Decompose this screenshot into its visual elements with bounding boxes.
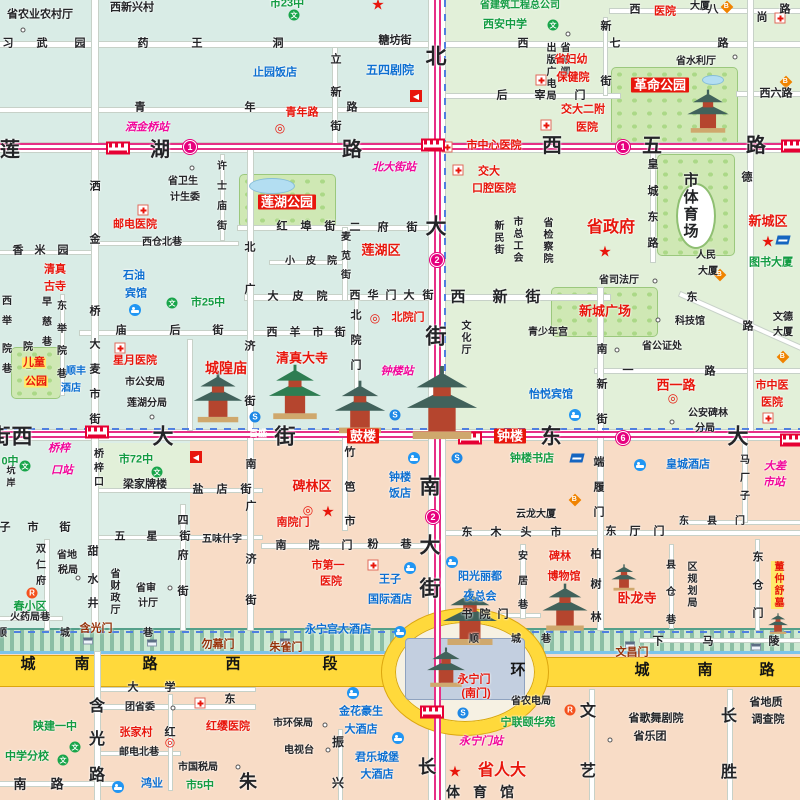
metro-line-badge-icon: 1 [183, 140, 197, 154]
station-crenellation [424, 141, 442, 145]
wall-gate-tower-icon [83, 638, 93, 645]
hotel-label: 皇城酒店 [666, 460, 710, 471]
bank-letter: B [780, 352, 785, 359]
hotel-bed-glyph [132, 307, 135, 310]
street-label: 一 [623, 366, 634, 377]
station-crenellation [109, 144, 127, 148]
street-label: 府 [36, 577, 46, 587]
street-label: 门 [498, 610, 509, 621]
street-label: 街 [325, 222, 336, 233]
street-label: 调查院 [752, 715, 785, 726]
street-label: 邮电北巷 [119, 748, 159, 758]
wall-gate-tower-icon [751, 644, 761, 651]
poi-label-red: 红缨医院 [206, 722, 250, 733]
street-label: 路 [746, 136, 766, 156]
street-label: 德 [742, 173, 753, 184]
ring-road-label: 路 [142, 657, 157, 672]
street-label: 电视台 [284, 746, 314, 756]
street-label: 麦 [341, 233, 351, 243]
street-label: 柏 [591, 550, 602, 561]
s-badge-icon: S [250, 412, 261, 423]
street-label: 东 [753, 553, 764, 564]
street-label: 广 [246, 502, 257, 513]
poi-label-red: 市中心医院 [467, 141, 522, 152]
street-label: 省歌舞剧院 [629, 714, 684, 725]
road [0, 108, 437, 112]
street-label: 市 [345, 517, 356, 528]
school-store-label: 中学分校 [5, 752, 49, 763]
street-label: 莲湖分局 [127, 399, 167, 409]
street-label: 子 [0, 523, 11, 534]
institution-dot-icon [150, 415, 155, 420]
street-label: 市总工会 [511, 216, 521, 264]
street-label: 王 [192, 39, 203, 50]
poi-label-red: 碑林区 [292, 480, 331, 493]
street-label: 仓 [666, 588, 676, 598]
street-label: 洒 [90, 182, 101, 193]
street-label: 省地质 [750, 698, 783, 709]
street-label: 路 [347, 103, 358, 114]
bank-letter: B [783, 77, 788, 84]
street-label: 西 [2, 297, 12, 307]
street-label: 桥 [90, 307, 101, 318]
street-label: 头 [521, 528, 532, 539]
metro-station-icon [421, 139, 445, 152]
street-label: 街 [213, 326, 224, 337]
poi-label-red: 市中医 [756, 381, 789, 392]
pond-icon [249, 178, 295, 194]
street-label: 居 [518, 577, 528, 587]
street-label: 后 [170, 326, 181, 337]
street-label: 履 [594, 483, 605, 494]
govt-seat-icon: ◎ [668, 391, 678, 405]
poi-label-red: 医院 [576, 123, 598, 134]
metro-station-icon [420, 706, 444, 719]
street-label: 皮 [306, 257, 316, 267]
hotel-label: 怡悦宾馆 [529, 390, 573, 401]
institution-dot-icon [190, 166, 195, 171]
street-label: 厂 [740, 474, 750, 484]
metro-line-badge-icon: 2 [426, 510, 440, 524]
street-label: 区规划局 [685, 561, 695, 609]
street-label: 水 [88, 575, 99, 586]
ring-road-label: 西 [225, 657, 240, 672]
street-label: 育 [473, 785, 487, 799]
street-label: 苋 [341, 252, 351, 262]
poi-label-red: 永宁门 [458, 675, 491, 686]
poi-label-red: 医院 [761, 398, 783, 409]
street-label: 路 [89, 768, 105, 784]
hotel-label: 酒店 [61, 384, 81, 394]
station-crenellation [783, 436, 800, 440]
hotel-icon [569, 409, 581, 421]
school-store-label: 图书大厦 [749, 258, 793, 269]
hotel-label: 君乐城堡 [355, 753, 399, 764]
street-label: 北 [426, 47, 447, 68]
hotel-bed-glyph [411, 455, 414, 458]
street-label: 糖坊街 [379, 36, 412, 47]
metro-station-label: 大差 [764, 462, 786, 473]
park-name-badge: 鼓楼 [347, 429, 379, 444]
ring-road-label: 路 [759, 663, 774, 678]
street-label: 科技馆 [675, 317, 705, 327]
street-label: 省农业农村厅 [7, 10, 73, 21]
street-label: 文德 [773, 313, 793, 323]
hotel-label: 宾馆 [125, 289, 147, 300]
street-label: 小 [285, 257, 295, 267]
street-label: 省审 [136, 584, 156, 594]
street-label: 学 [165, 683, 176, 694]
ring-road-label: 南 [697, 663, 712, 678]
street-label: 门 [654, 527, 665, 538]
street-label: 计生委 [170, 193, 200, 203]
poi-label-red: 口腔医院 [472, 184, 516, 195]
hotel-icon [129, 304, 141, 316]
hotel-bed-glyph [395, 735, 398, 738]
street-label: 五 [115, 532, 126, 543]
street-label: 香 [13, 246, 24, 257]
street-label: 东 [541, 427, 562, 448]
renrenle-r-icon: R [565, 705, 576, 716]
street-label: 四 [178, 516, 189, 527]
street-label: 东 [679, 517, 689, 527]
hotel-icon [446, 556, 458, 568]
school-store-label: 市23中 [270, 0, 304, 10]
street-label: 仁 [36, 561, 46, 571]
street-label: 院 [57, 347, 67, 357]
wall-gate-tower-icon [147, 640, 157, 647]
street-label: 东 [648, 213, 659, 224]
hotel-icon [404, 562, 416, 574]
poi-label-red: (南门) [461, 689, 490, 700]
ring-road-label: 城 [634, 663, 649, 678]
metro-station-label: 北大街站 [372, 163, 416, 174]
highlighted-poi-label: 公园 [24, 377, 48, 388]
street-label: 新 [597, 380, 608, 391]
street-label: 市体育场 [683, 172, 698, 240]
bank-letter: B [724, 2, 729, 9]
street-label: 南 [420, 477, 441, 498]
street-label: 双 [36, 545, 46, 555]
street-label: 街 [601, 77, 612, 88]
street-label: 大 [153, 427, 174, 448]
poi-label-red: 张家村 [120, 728, 153, 739]
street-label: 计厅 [138, 599, 158, 609]
street-label: 早 [42, 298, 52, 308]
hotel-icon [634, 459, 646, 471]
metro-station-icon [106, 142, 130, 155]
street-label: 巷 [42, 338, 52, 348]
street-label: 金 [90, 235, 101, 246]
gate-name-label: 朱雀门 [270, 643, 303, 654]
road [100, 705, 255, 709]
cross-bar [142, 207, 144, 213]
street-label: 大厦 [690, 2, 710, 12]
street-label: 西六路 [760, 89, 793, 100]
street-label: 东 [687, 293, 698, 304]
bookstore-icon [775, 236, 790, 245]
institution-dot-icon [670, 420, 675, 425]
institution-dot-icon [168, 586, 173, 591]
street-label: 厅 [630, 527, 641, 538]
street-label: 城 [511, 635, 521, 645]
street-label: 含 [89, 699, 105, 715]
institution-dot-icon [76, 576, 81, 581]
school-store-label: 钟楼书店 [510, 454, 554, 465]
poi-label-red: 北院门 [392, 313, 425, 324]
school-store-label: 西安中学 [483, 20, 527, 31]
street-label: 市环保局 [273, 719, 313, 729]
road [445, 94, 620, 98]
street-label: 庙 [217, 202, 227, 212]
street-label: 巷 [143, 629, 153, 639]
hospital-cross-icon [195, 698, 206, 709]
street-label: 竹 [345, 448, 356, 459]
street-label: 西新兴村 [110, 3, 154, 14]
metro-line-badge-icon: 1 [616, 140, 630, 154]
street-label: 光 [89, 732, 105, 748]
street-label: 路 [780, 5, 791, 16]
hotel-icon [392, 732, 404, 744]
street-label: 桥 [94, 450, 104, 460]
street-label: 新 [492, 290, 507, 305]
cross-bar [545, 122, 547, 128]
street-label: 树 [591, 580, 602, 591]
street-label: 西仓北巷 [142, 238, 182, 248]
street-label: 门 [594, 508, 605, 519]
govt-seat-icon: ◎ [303, 503, 313, 517]
street-label: 南 [597, 345, 608, 356]
street-label: 文 [580, 704, 596, 720]
hotel-bed-glyph [410, 458, 418, 461]
street-label: 市 [313, 328, 324, 339]
street-label: 省地 [57, 551, 77, 561]
hotel-bed-glyph [637, 462, 640, 465]
street-label: 顺 [0, 629, 7, 639]
street-label: 公安碑林 [688, 409, 728, 419]
school-store-label: 市25中 [191, 298, 225, 309]
institution-dot-icon [21, 28, 26, 33]
street-label: 省财政厅 [108, 568, 118, 616]
street-label: 兴 [332, 777, 344, 789]
street-label: 市公安局 [125, 378, 165, 388]
street-label: 济 [246, 555, 257, 566]
ring-road-label: 城 [20, 657, 35, 672]
street-label: 大厦 [698, 267, 718, 277]
street-label: 米 [35, 246, 46, 257]
street-label: 市 [90, 390, 101, 401]
star-icon: ★ [321, 505, 334, 520]
hospital-cross-icon [115, 343, 126, 354]
star-icon: ★ [448, 765, 461, 780]
street-label: 北 [245, 243, 256, 254]
street-label: 立 [331, 55, 342, 66]
hospital-cross-icon [541, 120, 552, 131]
station-base [109, 151, 127, 153]
street-label: 门 [386, 291, 397, 302]
school-wen-icon: 文 [289, 10, 300, 21]
street-label: 陵 [769, 637, 780, 648]
poi-label-red: 市第一 [312, 561, 345, 572]
street-label: 馆 [500, 785, 514, 799]
hotel-bed-glyph [407, 565, 410, 568]
govt-seat-icon: ◎ [275, 121, 285, 135]
hotel-icon [394, 626, 406, 638]
street-label: 省检察院 [541, 217, 551, 265]
street-label: 口 [94, 478, 104, 488]
hotel-bed-glyph [572, 412, 575, 415]
poi-label-red: 西一路 [656, 379, 695, 392]
metro-station-label: 桥梓 [48, 444, 70, 455]
street-label: 街 [420, 579, 441, 600]
poi-label-red: 清真大寺 [276, 352, 328, 365]
street-label: 青少年宫 [528, 328, 568, 338]
street-label: 东 [225, 695, 236, 706]
hotel-label: 饭店 [389, 489, 411, 500]
street-label: 省司法厅 [599, 276, 639, 286]
hospital-cross-icon [453, 165, 464, 176]
street-label: 院 [351, 336, 362, 347]
street-label: 大 [90, 340, 101, 351]
street-label: 街 [426, 327, 447, 348]
xian-city-map: 文文文文文文文★★★★★◎◎◎◎◎BBBBBSSSSRR◀◀11226 [0, 0, 800, 800]
street-label: 下 [653, 637, 664, 648]
street-label: 药 [138, 39, 149, 50]
poi-label-red: 邮电医院 [113, 220, 157, 231]
poi-label-red: 医院 [320, 577, 342, 588]
street-label: 大 [404, 291, 415, 302]
street-label: 大 [728, 427, 749, 448]
hotel-bed-glyph [448, 562, 456, 565]
cross-bar [446, 144, 448, 150]
cross-bar [540, 77, 542, 83]
hotel-label: 王子 [379, 575, 401, 586]
hotel-bed-glyph [350, 690, 353, 693]
street-label: 园 [58, 246, 69, 257]
poi-label-red: 古寺 [44, 282, 66, 293]
institution-dot-icon [566, 32, 571, 37]
street-label: 广 [245, 285, 256, 296]
hotel-label: 五四剧院 [366, 64, 414, 76]
s-badge-icon: S [458, 708, 469, 719]
street-label: 胜 [721, 765, 737, 781]
station-base [424, 148, 442, 150]
poi-label-red: 碑林 [549, 552, 571, 563]
street-label: 皇 [648, 160, 659, 171]
street-label: 院 [317, 292, 328, 303]
street-label: 青 [135, 103, 146, 114]
street-label: 星 [147, 532, 158, 543]
district-boundary [0, 428, 800, 430]
street-label: 省农电局 [511, 697, 551, 707]
street-label: 城 [648, 187, 659, 198]
street-label: 市 [28, 523, 39, 534]
street-label: 七 [610, 39, 621, 50]
street-label: 路 [648, 239, 659, 250]
street-label: 林 [591, 613, 602, 624]
street-label: 书 [462, 610, 473, 621]
street-label: 新民街 [492, 220, 502, 256]
school-wen-icon: 文 [58, 755, 69, 766]
street-label: 盐 [193, 485, 204, 496]
station-crenellation [423, 708, 441, 712]
street-label: 麦 [90, 365, 101, 376]
street-label: 大厦 [773, 328, 793, 338]
renrenle-r-icon: R [27, 588, 38, 599]
street-label: 城 [60, 629, 70, 639]
street-label: 体 [446, 785, 460, 799]
street-label: 街 [275, 427, 296, 448]
street-label: 门 [342, 541, 353, 552]
street-label: 门 [753, 609, 764, 620]
street-label: 街 [341, 271, 351, 281]
street-label: 振 [332, 736, 344, 748]
metro-station-icon [780, 434, 800, 447]
metro-station-label: 钟楼站 [381, 367, 414, 378]
map-arrow-icon: ◀ [410, 90, 422, 102]
street-label: 甜 [88, 547, 99, 558]
school-store-label: 0中 [1, 457, 18, 468]
poi-label-red: 城隍庙 [205, 361, 247, 375]
hotel-label: 石油 [123, 271, 145, 282]
street-label: 大 [420, 536, 441, 557]
street-label: 巷 [2, 365, 12, 375]
poi-label-red: 保健院 [557, 73, 590, 84]
street-label: 路 [342, 140, 362, 160]
park-area [12, 348, 60, 398]
s-badge-icon: S [452, 453, 463, 464]
street-label: 院 [327, 257, 337, 267]
book-page-line [572, 458, 581, 460]
hotel-label: 大酒店 [361, 770, 394, 781]
metro-station-label: 永宁门站 [459, 737, 503, 748]
school-wen-icon: 文 [167, 298, 178, 309]
hotel-bed-glyph [114, 787, 122, 790]
street-label: 尚 [757, 13, 768, 24]
bookstore-icon [569, 454, 584, 463]
street-label: 路 [718, 39, 729, 50]
station-crenellation [88, 428, 106, 432]
street-label: 顺 [469, 635, 479, 645]
street-label: 举 [57, 325, 67, 335]
hotel-icon [347, 687, 359, 699]
street-label: 西 [630, 5, 641, 16]
institution-dot-icon [236, 765, 241, 770]
govt-seat-icon: ◎ [370, 311, 380, 325]
ring-road-label: 环 [510, 663, 525, 678]
hospital-cross-icon [763, 413, 774, 424]
hotel-label: 国际酒店 [368, 595, 412, 606]
hotel-label: 永宁宫大酒店 [305, 625, 371, 636]
street-label: 马 [703, 637, 714, 648]
s-badge-icon: S [390, 410, 401, 421]
street-label: 举 [2, 317, 12, 327]
street-label: 西 [267, 328, 278, 339]
street-label: 西 [518, 39, 529, 50]
hotel-label: 钟楼 [389, 473, 411, 484]
street-label: 红 [277, 222, 288, 233]
street-label: 巷 [666, 616, 676, 626]
street-label: 园 [75, 39, 86, 50]
school-wen-icon: 文 [152, 467, 163, 478]
hospital-cross-icon [138, 205, 149, 216]
street-label: 马 [740, 456, 750, 466]
school-store-label: 春小区 [14, 602, 47, 613]
road [95, 489, 262, 492]
street-label: 子 [740, 492, 750, 502]
hotel-label: 大酒店 [345, 725, 378, 736]
street-label: 府 [378, 223, 389, 234]
